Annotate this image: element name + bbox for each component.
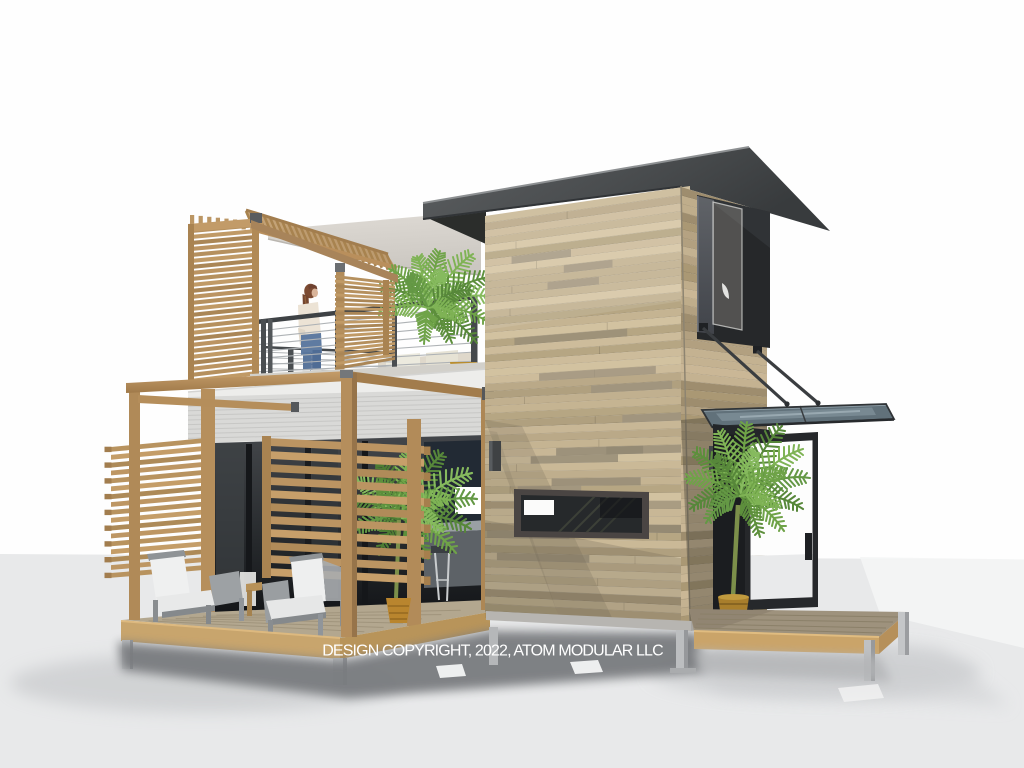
svg-text:DESIGN COPYRIGHT, 2022, ATOM M: DESIGN COPYRIGHT, 2022, ATOM MODULAR LLC: [322, 643, 663, 660]
